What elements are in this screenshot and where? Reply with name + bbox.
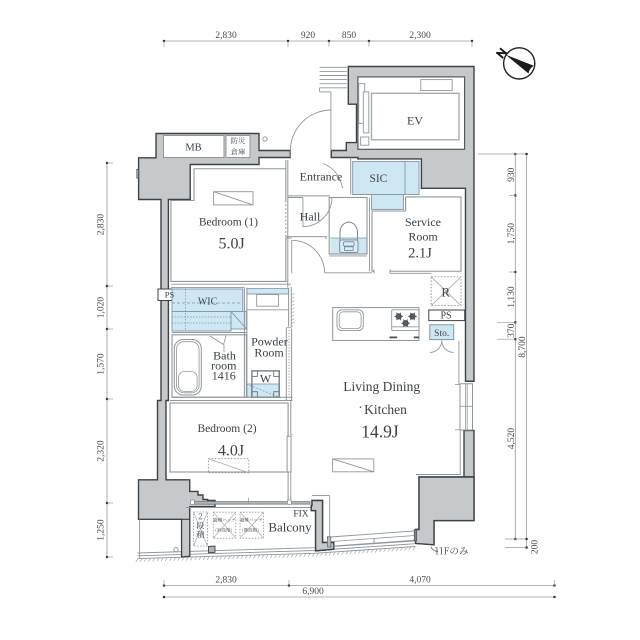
- svg-text:5.0J: 5.0J: [218, 236, 244, 253]
- svg-text:4,070: 4,070: [409, 576, 431, 586]
- svg-text:Room: Room: [408, 230, 438, 244]
- svg-text:R: R: [441, 285, 450, 300]
- svg-text:850: 850: [342, 31, 357, 41]
- svg-text:Balcony: Balcony: [268, 520, 312, 535]
- svg-text:1,570: 1,570: [97, 353, 107, 375]
- svg-text:FIX: FIX: [293, 509, 308, 519]
- svg-text:Room: Room: [254, 346, 284, 360]
- svg-text:2,300: 2,300: [409, 31, 431, 41]
- svg-text:Entrance: Entrance: [300, 170, 343, 184]
- svg-text:SIC: SIC: [369, 173, 387, 185]
- svg-text:PS: PS: [440, 311, 451, 322]
- svg-text:Sto.: Sto.: [434, 329, 449, 339]
- svg-text:EV: EV: [407, 114, 423, 128]
- svg-text:4.0J: 4.0J: [218, 442, 244, 459]
- svg-text:Kitchen: Kitchen: [364, 402, 407, 417]
- svg-text:8,700: 8,700: [518, 336, 528, 358]
- svg-text:920: 920: [301, 31, 316, 41]
- svg-text:1,130: 1,130: [507, 286, 517, 308]
- svg-text:2,830: 2,830: [215, 576, 237, 586]
- svg-text:Hall: Hall: [300, 210, 321, 224]
- svg-text:2,830: 2,830: [215, 31, 237, 41]
- svg-text:14.9J: 14.9J: [361, 422, 399, 442]
- svg-text:6,900: 6,900: [302, 587, 324, 597]
- svg-text:2,320: 2,320: [97, 440, 107, 462]
- svg-text:2.1J: 2.1J: [408, 246, 432, 262]
- svg-text:Service: Service: [405, 215, 441, 229]
- svg-text:370: 370: [507, 323, 517, 338]
- svg-text:PS: PS: [165, 290, 175, 300]
- svg-text:MB: MB: [185, 143, 201, 154]
- svg-text:W: W: [260, 372, 272, 386]
- svg-text:1,250: 1,250: [97, 519, 107, 541]
- svg-text:1,020: 1,020: [97, 297, 107, 319]
- svg-text:Bedroom (1): Bedroom (1): [199, 217, 258, 229]
- svg-text:1416: 1416: [212, 369, 236, 383]
- svg-text:·: ·: [358, 400, 363, 415]
- svg-text:200: 200: [531, 540, 541, 555]
- svg-text:1,750: 1,750: [507, 223, 517, 245]
- svg-text:WIC: WIC: [198, 297, 218, 308]
- svg-text:4,520: 4,520: [507, 428, 517, 450]
- svg-text:930: 930: [507, 167, 517, 182]
- svg-text:2,830: 2,830: [97, 214, 107, 236]
- svg-text:Living Dining: Living Dining: [343, 379, 420, 394]
- svg-text:Bedroom (2): Bedroom (2): [197, 423, 256, 435]
